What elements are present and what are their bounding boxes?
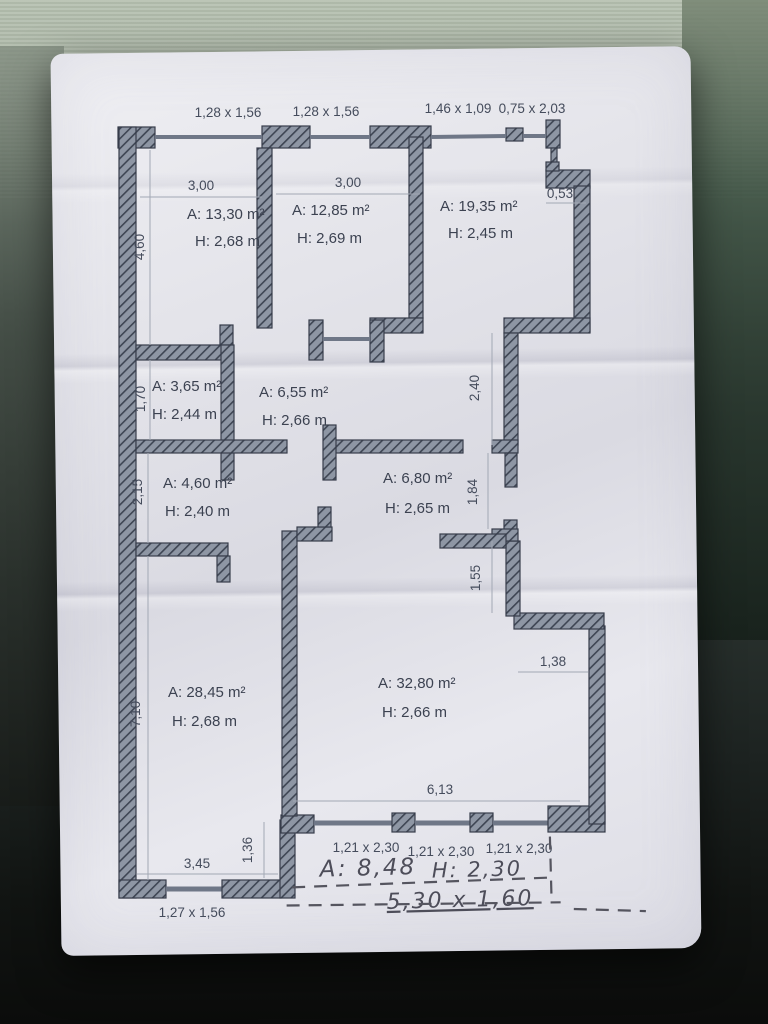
room-height-label: H: 2,68 m xyxy=(195,233,260,250)
room-height-label: H: 2,44 m xyxy=(152,406,217,423)
room-area-label: A: 6,55 m² xyxy=(259,384,328,401)
dim-label: 1,38 xyxy=(540,654,566,669)
dim-label: 1,55 xyxy=(468,565,483,591)
room-height-label: H: 2,66 m xyxy=(262,412,327,429)
room-area-label: A: 32,80 m² xyxy=(378,675,456,692)
room-height-label: H: 2,69 m xyxy=(297,230,362,247)
handwritten-area: A: 8,48 xyxy=(317,854,416,883)
room-area-label: A: 28,45 m² xyxy=(168,684,246,701)
dim-label: 4,60 xyxy=(132,234,147,260)
window-size-label: 1,46 x 1,09 xyxy=(425,101,492,116)
dim-label: 3,00 xyxy=(335,175,361,190)
window-size-label: 1,21 x 2,30 xyxy=(333,840,400,855)
balcony-dashed-outline xyxy=(574,907,646,913)
dim-label: 1,36 xyxy=(240,837,255,863)
dim-label: 6,13 xyxy=(427,782,453,797)
dim-label: 1,70 xyxy=(133,386,148,412)
room-height-label: H: 2,65 m xyxy=(385,500,450,517)
window-size-label: 1,21 x 2,30 xyxy=(408,844,475,859)
dim-label: 2,15 xyxy=(130,479,145,505)
room-area-label: A: 13,30 m² xyxy=(187,206,265,223)
floor-plan-drawing: 1,28 x 1,56 1,28 x 1,56 1,46 x 1,09 0,75… xyxy=(0,0,768,1024)
room-area-label: A: 19,35 m² xyxy=(440,198,518,215)
room-area-label: A: 3,65 m² xyxy=(152,378,221,395)
handwritten-height: H: 2,30 xyxy=(431,856,522,882)
window-size-label: 1,21 x 2,30 xyxy=(486,841,553,856)
room-area-label: A: 12,85 m² xyxy=(292,202,370,219)
dim-label: 0,53 xyxy=(547,186,573,201)
dim-label: 3,45 xyxy=(184,856,210,871)
window-size-label: 1,28 x 1,56 xyxy=(195,105,262,120)
dim-label: 3,00 xyxy=(188,178,214,193)
room-height-label: H: 2,45 m xyxy=(448,225,513,242)
room-area-label: A: 4,60 m² xyxy=(163,475,232,492)
dim-label: 2,40 xyxy=(467,375,482,401)
window-size-label: 1,28 x 1,56 xyxy=(293,104,360,119)
room-height-label: H: 2,40 m xyxy=(165,503,230,520)
dim-label: 7,10 xyxy=(128,701,143,727)
window-size-label: 1,27 x 1,56 xyxy=(159,905,226,920)
room-height-label: H: 2,68 m xyxy=(172,713,237,730)
handwritten-size: 5,30 x 1,60 xyxy=(386,886,534,915)
floor-plan-photo: 1,28 x 1,56 1,28 x 1,56 1,46 x 1,09 0,75… xyxy=(0,0,768,1024)
room-area-label: A: 6,80 m² xyxy=(383,470,452,487)
window-size-label: 0,75 x 2,03 xyxy=(499,101,566,116)
room-height-label: H: 2,66 m xyxy=(382,704,447,721)
dim-label: 1,84 xyxy=(465,478,480,505)
